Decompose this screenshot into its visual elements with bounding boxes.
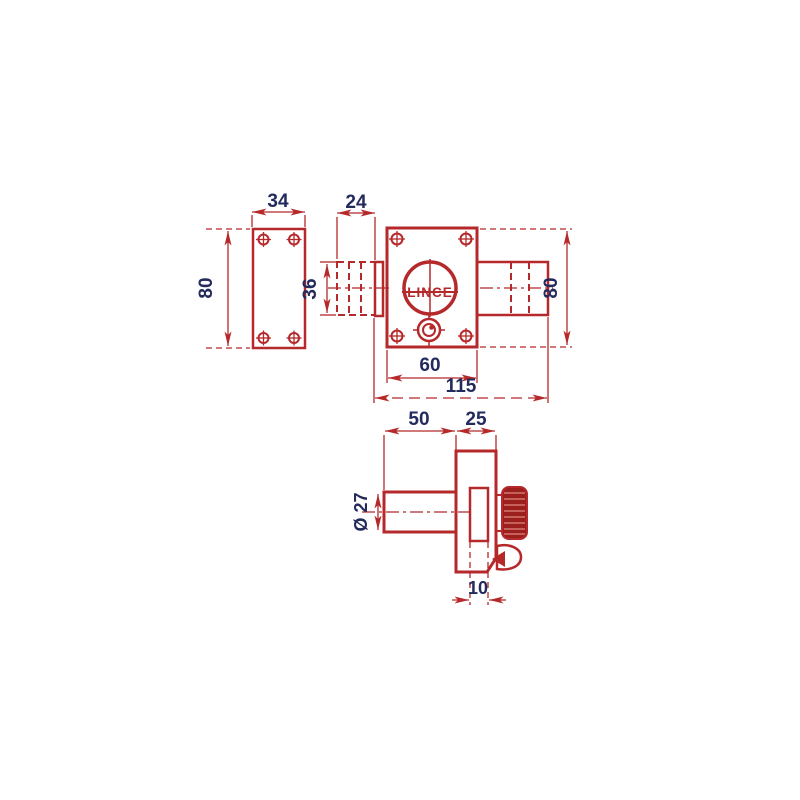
dim-label-bolt-protrusion: 24: [345, 192, 367, 213]
dim-label-barrel-length: 50: [408, 409, 429, 430]
screw-hole: [389, 328, 405, 344]
dim-label-barrel-diameter: Ø 27: [351, 492, 371, 531]
dim-label-body-height: 80: [541, 277, 562, 298]
dim-label-plate-height: 80: [196, 277, 217, 298]
dim-plate-width: 34: [252, 191, 305, 227]
dim-body-depth: 25: [457, 409, 496, 450]
bolt-faceplate: [375, 262, 383, 316]
thumbturn-knob: [496, 487, 527, 539]
dim-label-plate-width: 34: [267, 191, 289, 212]
dim-body-height: 80: [480, 229, 572, 347]
dim-label-body-depth: 25: [465, 409, 487, 430]
brand-logo-circle: LINCE: [402, 259, 458, 317]
dim-label-bolt-thickness: 10: [468, 578, 488, 598]
screw-hole: [287, 232, 302, 247]
lock-technical-drawing: 34 80 24 36: [0, 0, 800, 800]
screw-hole: [287, 331, 302, 346]
side-view: 50 25 Ø 27: [351, 409, 527, 605]
screw-hole: [389, 231, 405, 247]
dim-label-body-width: 60: [419, 355, 440, 376]
brand-label: LINCE: [407, 285, 453, 300]
lock-body: LINCE: [387, 228, 477, 347]
dim-plate-height: 80: [196, 229, 250, 348]
keyhole: [413, 314, 445, 346]
strike-plate: [253, 229, 305, 348]
dim-barrel-length: 50: [384, 409, 456, 490]
screw-hole: [256, 331, 271, 346]
screw-hole: [458, 328, 474, 344]
latch-stop: [492, 545, 521, 569]
bolt-channel: [470, 488, 488, 541]
front-view: 34 80 24 36: [196, 191, 572, 403]
screw-hole: [458, 231, 474, 247]
drawing-canvas: 34 80 24 36: [0, 0, 800, 800]
screw-hole: [256, 232, 271, 247]
dim-bolt-protrusion: 24: [337, 192, 375, 260]
dim-label-bolt-height: 36: [300, 278, 321, 299]
dim-label-overall-width: 115: [446, 376, 477, 397]
dim-overall-width: 115: [374, 317, 548, 403]
